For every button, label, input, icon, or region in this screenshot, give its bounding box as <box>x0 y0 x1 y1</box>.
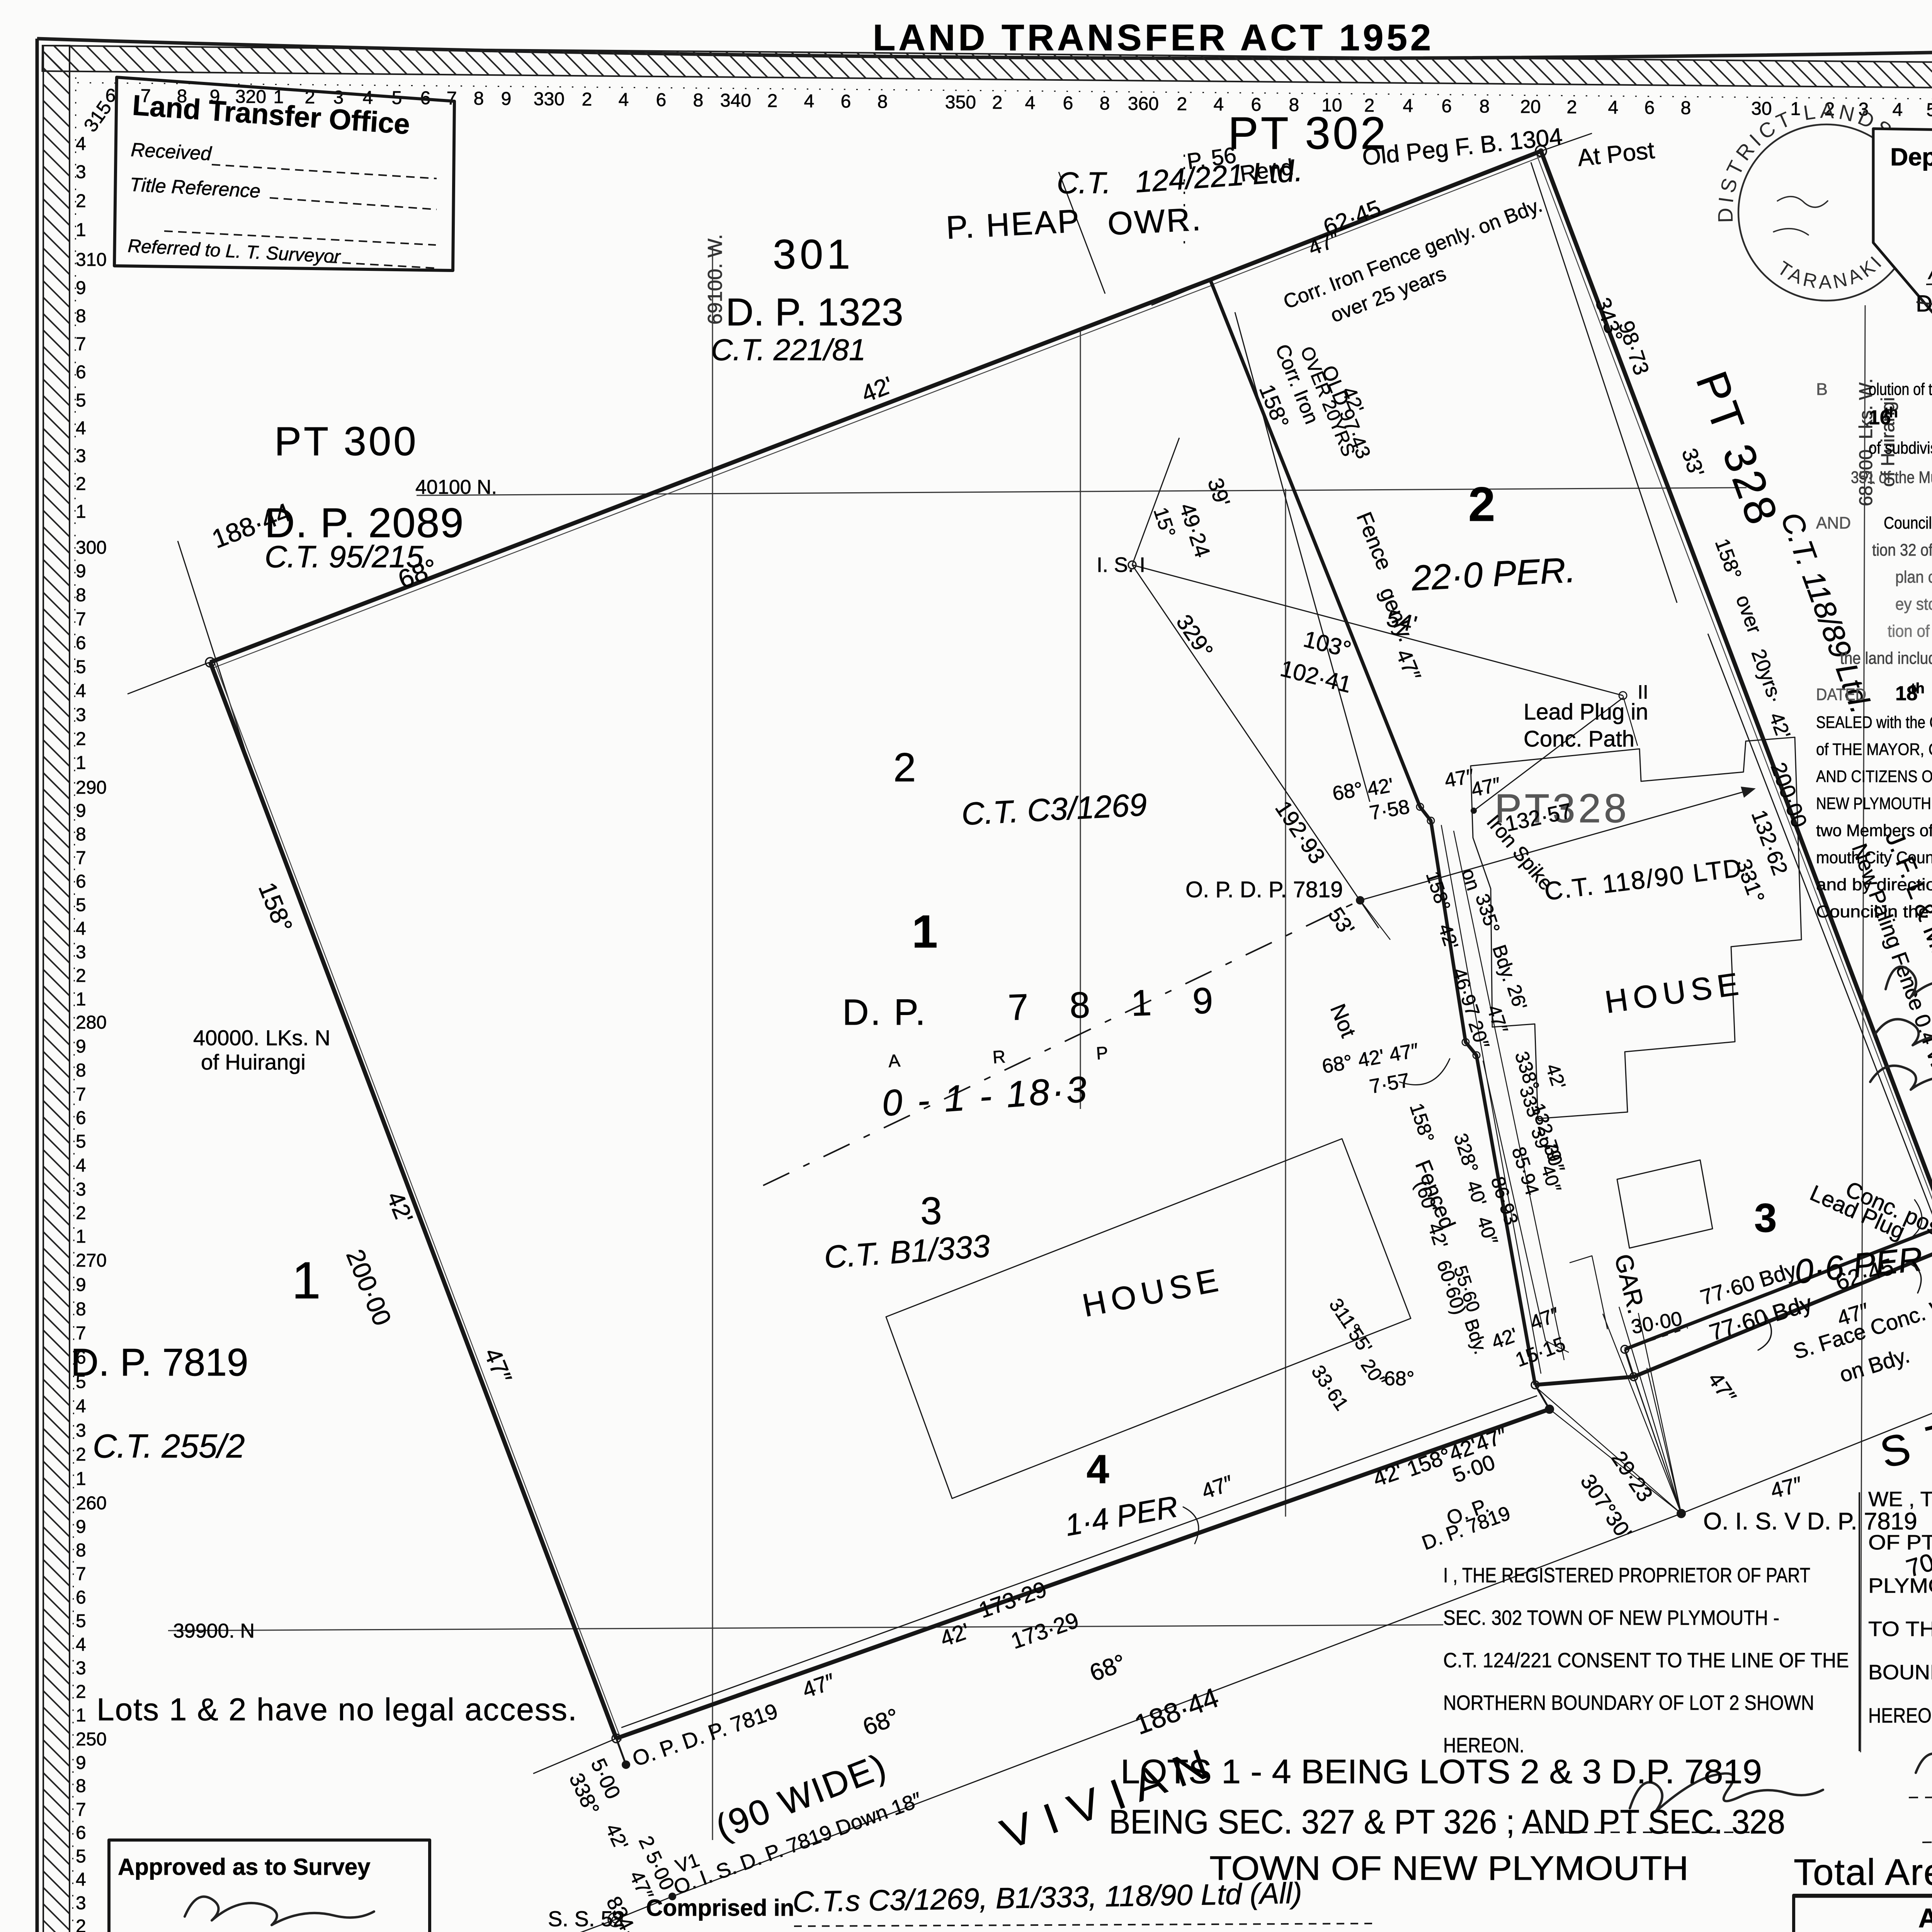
svg-text:2: 2 <box>76 474 86 494</box>
svg-text:280: 280 <box>76 1012 107 1033</box>
svg-text:5: 5 <box>76 1131 86 1152</box>
svg-text:th: th <box>1911 680 1925 697</box>
svg-text:3: 3 <box>76 1893 86 1913</box>
svg-text:D. P.: D. P. <box>842 992 927 1033</box>
svg-text:the land included in the said: the land included in the said plan is si… <box>1840 649 1932 668</box>
svg-text:2: 2 <box>76 1444 86 1465</box>
svg-text:P. HEAP: P. HEAP <box>945 202 1082 246</box>
svg-text:4: 4 <box>618 90 629 110</box>
svg-text:4: 4 <box>1608 97 1618 118</box>
svg-text:D. P. 2089: D. P. 2089 <box>265 499 464 546</box>
svg-text:39900. N: 39900. N <box>173 1620 255 1642</box>
svg-text:4: 4 <box>76 418 86 439</box>
svg-text:OF PT SEC. 328 TOWN OF NEW: OF PT SEC. 328 TOWN OF NEW <box>1868 1531 1932 1554</box>
svg-text:4: 4 <box>76 681 86 701</box>
svg-text:5: 5 <box>76 657 86 677</box>
svg-text:BEING SEC. 327 & PT 326 ; AND: BEING SEC. 327 & PT 326 ; AND PT SEC. 32… <box>1109 1803 1785 1841</box>
svg-text:4: 4 <box>1892 100 1903 120</box>
svg-text:2: 2 <box>76 1916 86 1932</box>
svg-text:301: 301 <box>773 231 854 277</box>
svg-text:II: II <box>1638 681 1648 703</box>
svg-text:9: 9 <box>76 1036 86 1057</box>
svg-text:PT 300: PT 300 <box>274 419 418 464</box>
svg-text:2: 2 <box>1177 94 1187 114</box>
svg-text:1: 1 <box>76 1226 86 1247</box>
svg-text:360: 360 <box>1128 94 1159 114</box>
svg-text:5: 5 <box>76 895 86 915</box>
svg-text:4: 4 <box>76 1869 86 1890</box>
svg-text:AND: AND <box>1816 514 1851 532</box>
svg-text:WE , THE REGISTERED PROPRIETOR: WE , THE REGISTERED PROPRIETORS <box>1868 1488 1932 1511</box>
svg-text:3: 3 <box>76 162 86 182</box>
svg-text:4: 4 <box>76 1155 86 1176</box>
svg-text:NORTHERN BOUNDARY OF LOT 2 SHO: NORTHERN BOUNDARY OF LOT 2 SHOWN <box>1443 1691 1814 1714</box>
svg-text:7: 7 <box>76 334 86 354</box>
svg-text:Received: Received <box>130 139 213 165</box>
svg-text:300: 300 <box>76 537 107 558</box>
svg-text:B: B <box>1816 380 1828 399</box>
svg-text:8: 8 <box>1479 96 1490 117</box>
svg-text:6: 6 <box>105 85 116 106</box>
svg-text:8: 8 <box>76 1299 86 1320</box>
svg-text:7: 7 <box>76 609 86 629</box>
svg-text:69100. W.: 69100. W. <box>704 234 726 325</box>
svg-text:1: 1 <box>292 1251 321 1310</box>
svg-text:8: 8 <box>76 1776 86 1796</box>
svg-text:P: P <box>1095 1043 1109 1063</box>
svg-text:2: 2 <box>76 729 86 749</box>
svg-text:1: 1 <box>76 220 86 240</box>
svg-text:9: 9 <box>76 1753 86 1773</box>
svg-text:9: 9 <box>76 801 86 821</box>
svg-text:2: 2 <box>893 745 916 790</box>
svg-text:th: th <box>1884 405 1898 421</box>
svg-text:R: R <box>992 1046 1006 1067</box>
svg-text:8: 8 <box>693 90 703 111</box>
svg-text:1: 1 <box>76 989 86 1010</box>
svg-text:3: 3 <box>76 446 86 466</box>
svg-text:LAND TRANSFER ACT 1952: LAND TRANSFER ACT 1952 <box>873 17 1434 58</box>
svg-text:S. S. 52: S. S. 52 <box>548 1906 625 1931</box>
svg-text:7: 7 <box>76 1799 86 1820</box>
svg-text:9: 9 <box>76 278 86 298</box>
svg-text:3: 3 <box>76 1420 86 1441</box>
svg-text:and by direction of the said: and by direction of the said <box>1816 875 1932 894</box>
svg-text:2: 2 <box>76 1203 86 1223</box>
svg-text:42': 42' <box>1366 774 1395 801</box>
svg-text:5: 5 <box>76 1846 86 1867</box>
svg-text:5: 5 <box>1926 100 1932 120</box>
svg-text:Total Area : 0-2-02· 3: Total Area : 0-2-02· 3 <box>1794 1852 1932 1893</box>
svg-text:6: 6 <box>76 871 86 892</box>
svg-text:40100 N.: 40100 N. <box>415 476 497 498</box>
svg-text:ey stood at the time of the af: ey stood at the time of the aforesaid <box>1895 595 1932 614</box>
svg-text:8: 8 <box>1680 98 1691 118</box>
svg-text:1: 1 <box>76 502 86 522</box>
svg-text:3: 3 <box>920 1189 942 1233</box>
svg-text:6: 6 <box>76 1823 86 1843</box>
svg-text:7: 7 <box>76 1564 86 1584</box>
svg-text:C.T.: C.T. <box>1057 166 1111 200</box>
svg-text:2: 2 <box>1566 97 1577 117</box>
svg-text:6: 6 <box>76 362 86 383</box>
svg-text:tion of the scheme relating to: tion of the scheme relating to the <box>1888 622 1932 641</box>
svg-text:2: 2 <box>76 191 86 211</box>
svg-text:3: 3 <box>76 705 86 725</box>
svg-text:2: 2 <box>582 89 592 110</box>
svg-text:Lead Plug in: Lead Plug in <box>1524 699 1648 724</box>
svg-text:4: 4 <box>1403 96 1413 116</box>
svg-text:8: 8 <box>76 824 86 845</box>
svg-text:8: 8 <box>76 1540 86 1561</box>
svg-text:4: 4 <box>1213 94 1224 115</box>
svg-text:40000. LKs. N: 40000. LKs. N <box>193 1026 330 1050</box>
svg-text:Council hereby certifies pursu: Council hereby certifies pursuant to sub… <box>1884 514 1932 532</box>
svg-text:3: 3 <box>76 1658 86 1679</box>
svg-text:4: 4 <box>76 1634 86 1655</box>
svg-text:310: 310 <box>76 250 107 270</box>
svg-text:olution of the New Plymouth Ci: olution of the New Plymouth City Council… <box>1869 380 1932 399</box>
svg-text:6: 6 <box>76 1108 86 1128</box>
svg-text:D. P. 1323: D. P. 1323 <box>726 291 903 334</box>
svg-text:mouth City Council on behalf o: mouth City Council on behalf of <box>1816 848 1932 867</box>
svg-text:tion 32 of the Town and Countr: tion 32 of the Town and Country Planning… <box>1872 541 1932 560</box>
svg-text:C.T. 221/81: C.T. 221/81 <box>711 333 866 367</box>
svg-text:6: 6 <box>76 1587 86 1608</box>
svg-text:4: 4 <box>804 91 814 111</box>
svg-text:BOUNDARY OF LOT 2 SHOWN: BOUNDARY OF LOT 2 SHOWN <box>1868 1661 1932 1684</box>
svg-text:9: 9 <box>501 88 511 109</box>
svg-text:1: 1 <box>912 906 938 957</box>
svg-text:8: 8 <box>1099 93 1110 114</box>
svg-text:8: 8 <box>76 306 86 327</box>
svg-text:2: 2 <box>76 966 86 986</box>
svg-text:3: 3 <box>76 942 86 963</box>
svg-text:2: 2 <box>767 91 777 111</box>
svg-text:Comprised in: Comprised in <box>646 1895 794 1921</box>
svg-text:8: 8 <box>76 585 86 605</box>
svg-text:1: 1 <box>76 1469 86 1489</box>
svg-text:NEW PLYMOUTH and SIGNED by: NEW PLYMOUTH and SIGNED by <box>1816 794 1932 813</box>
svg-text:6: 6 <box>1441 96 1452 116</box>
svg-text:5: 5 <box>76 390 86 411</box>
svg-text:260: 260 <box>76 1493 107 1514</box>
svg-text:Approved as to Survey: Approved as to Survey <box>118 1854 371 1880</box>
svg-text:TO THE LINE OF THE EASTERN: TO THE LINE OF THE EASTERN <box>1868 1617 1932 1641</box>
svg-text:290: 290 <box>76 777 107 798</box>
svg-text:3: 3 <box>1754 1196 1777 1241</box>
svg-text:4: 4 <box>76 1396 86 1417</box>
svg-text:A: A <box>888 1050 901 1071</box>
svg-text:Approved: Approved <box>1918 1903 1932 1932</box>
svg-text:I. S. I: I. S. I <box>1097 553 1145 577</box>
svg-text:8: 8 <box>877 92 888 112</box>
svg-text:7 8 1 9: 7 8 1 9 <box>1007 980 1229 1028</box>
svg-text:2: 2 <box>76 1682 86 1702</box>
svg-text:9: 9 <box>76 561 86 582</box>
svg-text:330: 330 <box>534 89 565 110</box>
svg-text:of THE MAYOR, COUNCILLORS: of THE MAYOR, COUNCILLORS <box>1816 740 1932 759</box>
svg-text:68°: 68° <box>1384 1367 1415 1390</box>
svg-text:6: 6 <box>1063 93 1073 114</box>
svg-text:SEC. 302 TOWN OF NEW PLYMOUTH: SEC. 302 TOWN OF NEW PLYMOUTH - <box>1443 1606 1779 1629</box>
svg-text:270: 270 <box>76 1250 107 1271</box>
svg-text:9: 9 <box>76 1517 86 1537</box>
svg-text:6: 6 <box>1644 98 1655 118</box>
svg-text:SEALED with the COMMON SEAL: SEALED with the COMMON SEAL <box>1816 713 1932 732</box>
svg-text:D. P. 7819: D. P. 7819 <box>71 1341 248 1384</box>
svg-text:6: 6 <box>656 90 666 110</box>
svg-text:2: 2 <box>1468 478 1495 531</box>
svg-text:2: 2 <box>992 92 1002 113</box>
svg-text:3: 3 <box>76 1179 86 1200</box>
svg-text:7: 7 <box>76 848 86 868</box>
svg-text:of subdivision was approved fo: of subdivision was approved for the purp… <box>1869 439 1932 457</box>
svg-text:AND CITIZENS OF THE CITY OF: AND CITIZENS OF THE CITY OF <box>1816 767 1932 786</box>
svg-text:6: 6 <box>76 633 86 653</box>
svg-text:plan complies with the require: plan complies with the requirements and <box>1895 568 1932 587</box>
svg-text:350: 350 <box>945 92 976 113</box>
svg-text:4: 4 <box>1025 93 1035 113</box>
svg-text:1: 1 <box>76 1705 86 1726</box>
svg-text:Council in the presence of:: Council in the presence of: <box>1816 902 1932 921</box>
svg-text:6: 6 <box>840 91 851 112</box>
svg-text:LOTS 1 - 4 BEING LOTS 2 & 3: LOTS 1 - 4 BEING LOTS 2 & 3 D.P. 7819 <box>1121 1752 1762 1791</box>
svg-text:of Huirangi: of Huirangi <box>201 1050 306 1074</box>
svg-text:C.T. 255/2: C.T. 255/2 <box>93 1428 245 1465</box>
svg-text:20: 20 <box>1520 97 1541 117</box>
svg-text:PLYMOUTH - C.T. 118/89 CONSENT: PLYMOUTH - C.T. 118/89 CONSENT, <box>1868 1574 1932 1597</box>
svg-text:OWR.: OWR. <box>1107 201 1203 242</box>
svg-text:9: 9 <box>76 1275 86 1295</box>
svg-text:8: 8 <box>76 1060 86 1081</box>
svg-text:4: 4 <box>76 134 86 154</box>
svg-text:DATED: DATED <box>1816 685 1866 704</box>
svg-text:1: 1 <box>76 753 86 773</box>
svg-text:5: 5 <box>76 1611 86 1631</box>
svg-text:4: 4 <box>76 918 86 939</box>
svg-text:340: 340 <box>720 90 752 111</box>
svg-text:Lots 1 & 2 have no legal a: Lots 1 & 2 have no legal access. <box>97 1692 578 1727</box>
svg-text:Conc. Path: Conc. Path <box>1524 726 1634 752</box>
svg-text:two Members of The New Ply-: two Members of The New Ply- <box>1816 821 1932 840</box>
svg-text:8: 8 <box>473 88 484 109</box>
svg-text:I , THE REGISTERED PROPRIETOR: I , THE REGISTERED PROPRIETOR OF PART <box>1443 1564 1810 1587</box>
svg-text:351 of the Municipal Corporati: 351 of the Municipal Corporations Act 19… <box>1851 468 1932 487</box>
svg-text:Deposited: Deposited <box>1890 143 1932 171</box>
svg-text:4: 4 <box>1087 1447 1109 1492</box>
svg-text:7: 7 <box>76 1084 86 1105</box>
svg-text:O. P. D. P. 7819: O. P. D. P. 7819 <box>1185 877 1343 902</box>
svg-text:250: 250 <box>76 1729 107 1750</box>
svg-text:HEREON.: HEREON. <box>1868 1704 1932 1727</box>
svg-text:C.T. 124/221 CONSENT TO THE: C.T. 124/221 CONSENT TO THE LINE OF THE <box>1443 1649 1849 1672</box>
